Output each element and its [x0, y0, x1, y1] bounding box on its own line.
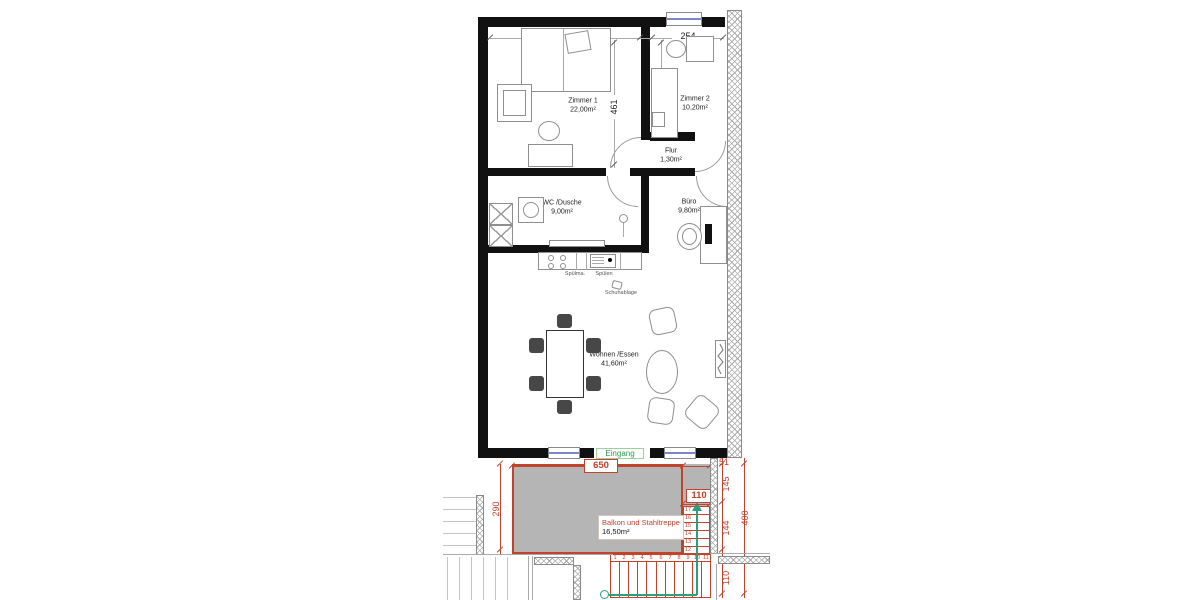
- dim-461: 461: [608, 95, 620, 119]
- window-top: [666, 12, 702, 26]
- wall-bottom-b: [580, 448, 594, 458]
- stair-run-number-line: [610, 561, 710, 562]
- stair-number: 9: [684, 555, 692, 561]
- neighbor-wall-mid-v: [573, 565, 581, 600]
- stair-run-tread: [701, 562, 702, 597]
- cooktop-burner: [548, 263, 554, 269]
- cooktop-burner: [560, 255, 566, 261]
- stair-number: 16: [684, 515, 692, 521]
- stair-run-tread: [628, 562, 629, 597]
- floor-drain-stem: [623, 223, 624, 237]
- chair-zimmer2: [666, 40, 686, 58]
- stair-number: 14: [684, 531, 692, 537]
- wall-wc-top-b: [630, 168, 649, 176]
- neighbor-wall-left: [476, 495, 484, 555]
- desk-zimmer1: [528, 144, 573, 167]
- neighbor-stair-tread: [459, 557, 460, 600]
- wall-left: [478, 17, 488, 458]
- door-arc-wc: [607, 176, 638, 207]
- dining-chair: [557, 314, 572, 328]
- room-name: Büro: [678, 199, 700, 208]
- room-label-flur: Flur 1,30m²: [660, 148, 682, 165]
- kitchen-label-left: Spülma.: [565, 271, 585, 277]
- dim-650: 650: [584, 459, 618, 473]
- entrance-label: Eingang: [596, 448, 644, 459]
- dining-chair: [586, 376, 601, 391]
- dining-table: [546, 330, 584, 398]
- stair-path-horizontal: [609, 594, 697, 596]
- wall-zimmer1-zimmer2: [641, 27, 650, 140]
- shower-lower: [489, 225, 513, 247]
- neighbor-line-long: [443, 554, 613, 555]
- dim-110-bottom: 110: [721, 566, 733, 590]
- room-area: 41,60m²: [589, 360, 638, 369]
- stair-run-tread: [683, 562, 684, 597]
- neighbor-stair-tread: [471, 557, 472, 600]
- wall-top-left: [488, 17, 666, 27]
- neighbor-wall-right-v: [710, 458, 718, 554]
- neighbor-stair-tread: [447, 557, 448, 600]
- stair-number: 7: [666, 555, 674, 561]
- neighbor-wall-mid-h: [534, 557, 574, 565]
- stair-path-vertical: [696, 510, 698, 595]
- stair-run-tread: [665, 562, 666, 597]
- neighbor-wall-right-h: [718, 556, 770, 564]
- wall-flur-buero: [649, 168, 695, 176]
- pillow-zimmer1: [564, 30, 591, 54]
- sink-line: [592, 263, 604, 264]
- room-name: WC /Dusche: [542, 200, 581, 209]
- door-arc-buero: [696, 176, 727, 207]
- stair-number: 3: [629, 555, 637, 561]
- bed-zimmer2: [651, 68, 678, 138]
- office-chair-inner: [682, 228, 697, 245]
- floor-drain-icon: [619, 214, 628, 223]
- stair-run-tread: [656, 562, 657, 597]
- stair-run-bottom-edge: [610, 597, 710, 598]
- stair-number: 11: [702, 555, 710, 561]
- stair-number: 12: [684, 547, 692, 553]
- wall-bottom-c: [650, 448, 664, 458]
- neighbor-vline: [528, 556, 529, 600]
- stair-number: 15: [684, 523, 692, 529]
- neighbor-step-line: [443, 545, 479, 546]
- window-bottom-right: [664, 447, 696, 459]
- neighbor-stair-tread: [507, 557, 508, 600]
- stair-number: 5: [647, 555, 655, 561]
- room-label-zimmer1: Zimmer 1 22,00m²: [568, 98, 598, 115]
- dim-144: 144: [721, 516, 733, 540]
- monitor-buero: [705, 224, 712, 244]
- stair-number: 6: [657, 555, 665, 561]
- neighbor-line-right: [710, 553, 770, 554]
- cooktop-burner: [560, 263, 566, 269]
- room-label-wohnen: Wohnen /Essen 41,60m²: [589, 352, 638, 369]
- chair-zimmer1: [538, 121, 560, 141]
- stair-number: 13: [684, 539, 692, 545]
- pillow-zimmer2: [652, 112, 665, 127]
- dim-290: 290: [491, 497, 503, 521]
- dining-chair: [557, 400, 572, 414]
- plant-squiggle-icon: [716, 341, 725, 377]
- balcony-label-box: Balkon und Stahltreppe 16,50m²: [598, 515, 684, 540]
- sink-line: [592, 257, 604, 258]
- stair-number: 8: [675, 555, 683, 561]
- room-name: Zimmer 1: [568, 98, 598, 107]
- dim-tick: [720, 34, 726, 40]
- coffee-table-oval: [646, 350, 678, 394]
- dim-400: 400: [740, 506, 752, 530]
- stair-run-tread: [646, 562, 647, 597]
- room-area: 10,20m²: [680, 104, 710, 113]
- shower-upper: [489, 203, 513, 225]
- vanity-counter: [549, 240, 605, 247]
- wall-top-right: [702, 17, 725, 27]
- neighbor-vline-right: [716, 564, 717, 600]
- neighbor-step-line: [443, 521, 479, 522]
- neighbor-step-line: [443, 533, 479, 534]
- neighbor-vline: [532, 556, 533, 600]
- stair-run-tread: [619, 562, 620, 597]
- room-label-buero: Büro 9,80m²: [678, 199, 700, 216]
- stair-run-tread: [637, 562, 638, 597]
- room-label-wc: WC /Dusche 9,00m²: [542, 200, 581, 217]
- stair-number: 2: [620, 555, 628, 561]
- door-arc-zimmer2: [695, 141, 726, 172]
- neighbor-step-line: [443, 497, 479, 498]
- sideboard: [715, 340, 726, 378]
- shoe-rack-sketch: [611, 280, 623, 290]
- floor-plan-canvas: Eingang 484 254 461 349 Zimmer 1 22,00m²…: [0, 0, 1200, 600]
- balcony-border: [512, 464, 683, 554]
- room-name: Flur: [660, 148, 682, 157]
- wall-bottom-a: [478, 448, 548, 458]
- neighbor-step-line: [443, 509, 479, 510]
- neighbor-stair-tread: [483, 557, 484, 600]
- wall-wc-top-a: [488, 168, 606, 176]
- stair-run-right-edge: [710, 554, 711, 598]
- stair-number: 4: [638, 555, 646, 561]
- kitchen-label-right: Spülen: [595, 271, 612, 277]
- wall-wc-right: [641, 176, 649, 246]
- dining-chair: [529, 338, 544, 353]
- room-area: 9,80m²: [678, 207, 700, 216]
- existing-wall-right: [727, 10, 742, 458]
- balcony-name: Balkon und Stahltreppe: [602, 518, 680, 527]
- room-area: 22,00m²: [568, 106, 598, 115]
- stair-number: 1: [611, 555, 619, 561]
- desk-zimmer2: [686, 36, 714, 62]
- kitchen-divider: [576, 252, 577, 270]
- neighbor-stair-tread: [495, 557, 496, 600]
- armchair-top: [648, 306, 679, 337]
- cooktop-burner: [548, 255, 554, 261]
- window-bottom-left: [548, 447, 580, 459]
- kitchen-divider: [620, 252, 621, 270]
- stair-number: 17: [684, 507, 692, 513]
- room-name: Zimmer 2: [680, 96, 710, 105]
- room-label-zimmer2: Zimmer 2 10,20m²: [680, 96, 710, 113]
- dining-chair: [529, 376, 544, 391]
- wardrobe-inner: [503, 90, 526, 116]
- kitchen-divider: [586, 252, 587, 270]
- sink-faucet-dot: [608, 258, 612, 262]
- room-area: 1,30m²: [660, 156, 682, 165]
- dining-chair: [586, 338, 601, 353]
- balcony-area: 16,50m²: [602, 527, 680, 536]
- armchair-bottom-left: [646, 396, 675, 425]
- washbasin-bowl: [523, 202, 539, 218]
- stair-run-tread: [692, 562, 693, 597]
- room-area: 9,00m²: [542, 208, 581, 217]
- stair-run-tread: [674, 562, 675, 597]
- dim-145: 145: [721, 472, 733, 496]
- shoe-rack-label: Schuhablage: [605, 290, 637, 296]
- stair-path-start-circle: [600, 590, 609, 599]
- bed-zimmer1-line: [563, 29, 564, 91]
- dim-110-top: 110: [686, 489, 712, 503]
- armchair-bottom-right: [682, 392, 721, 431]
- sink-line: [592, 260, 604, 261]
